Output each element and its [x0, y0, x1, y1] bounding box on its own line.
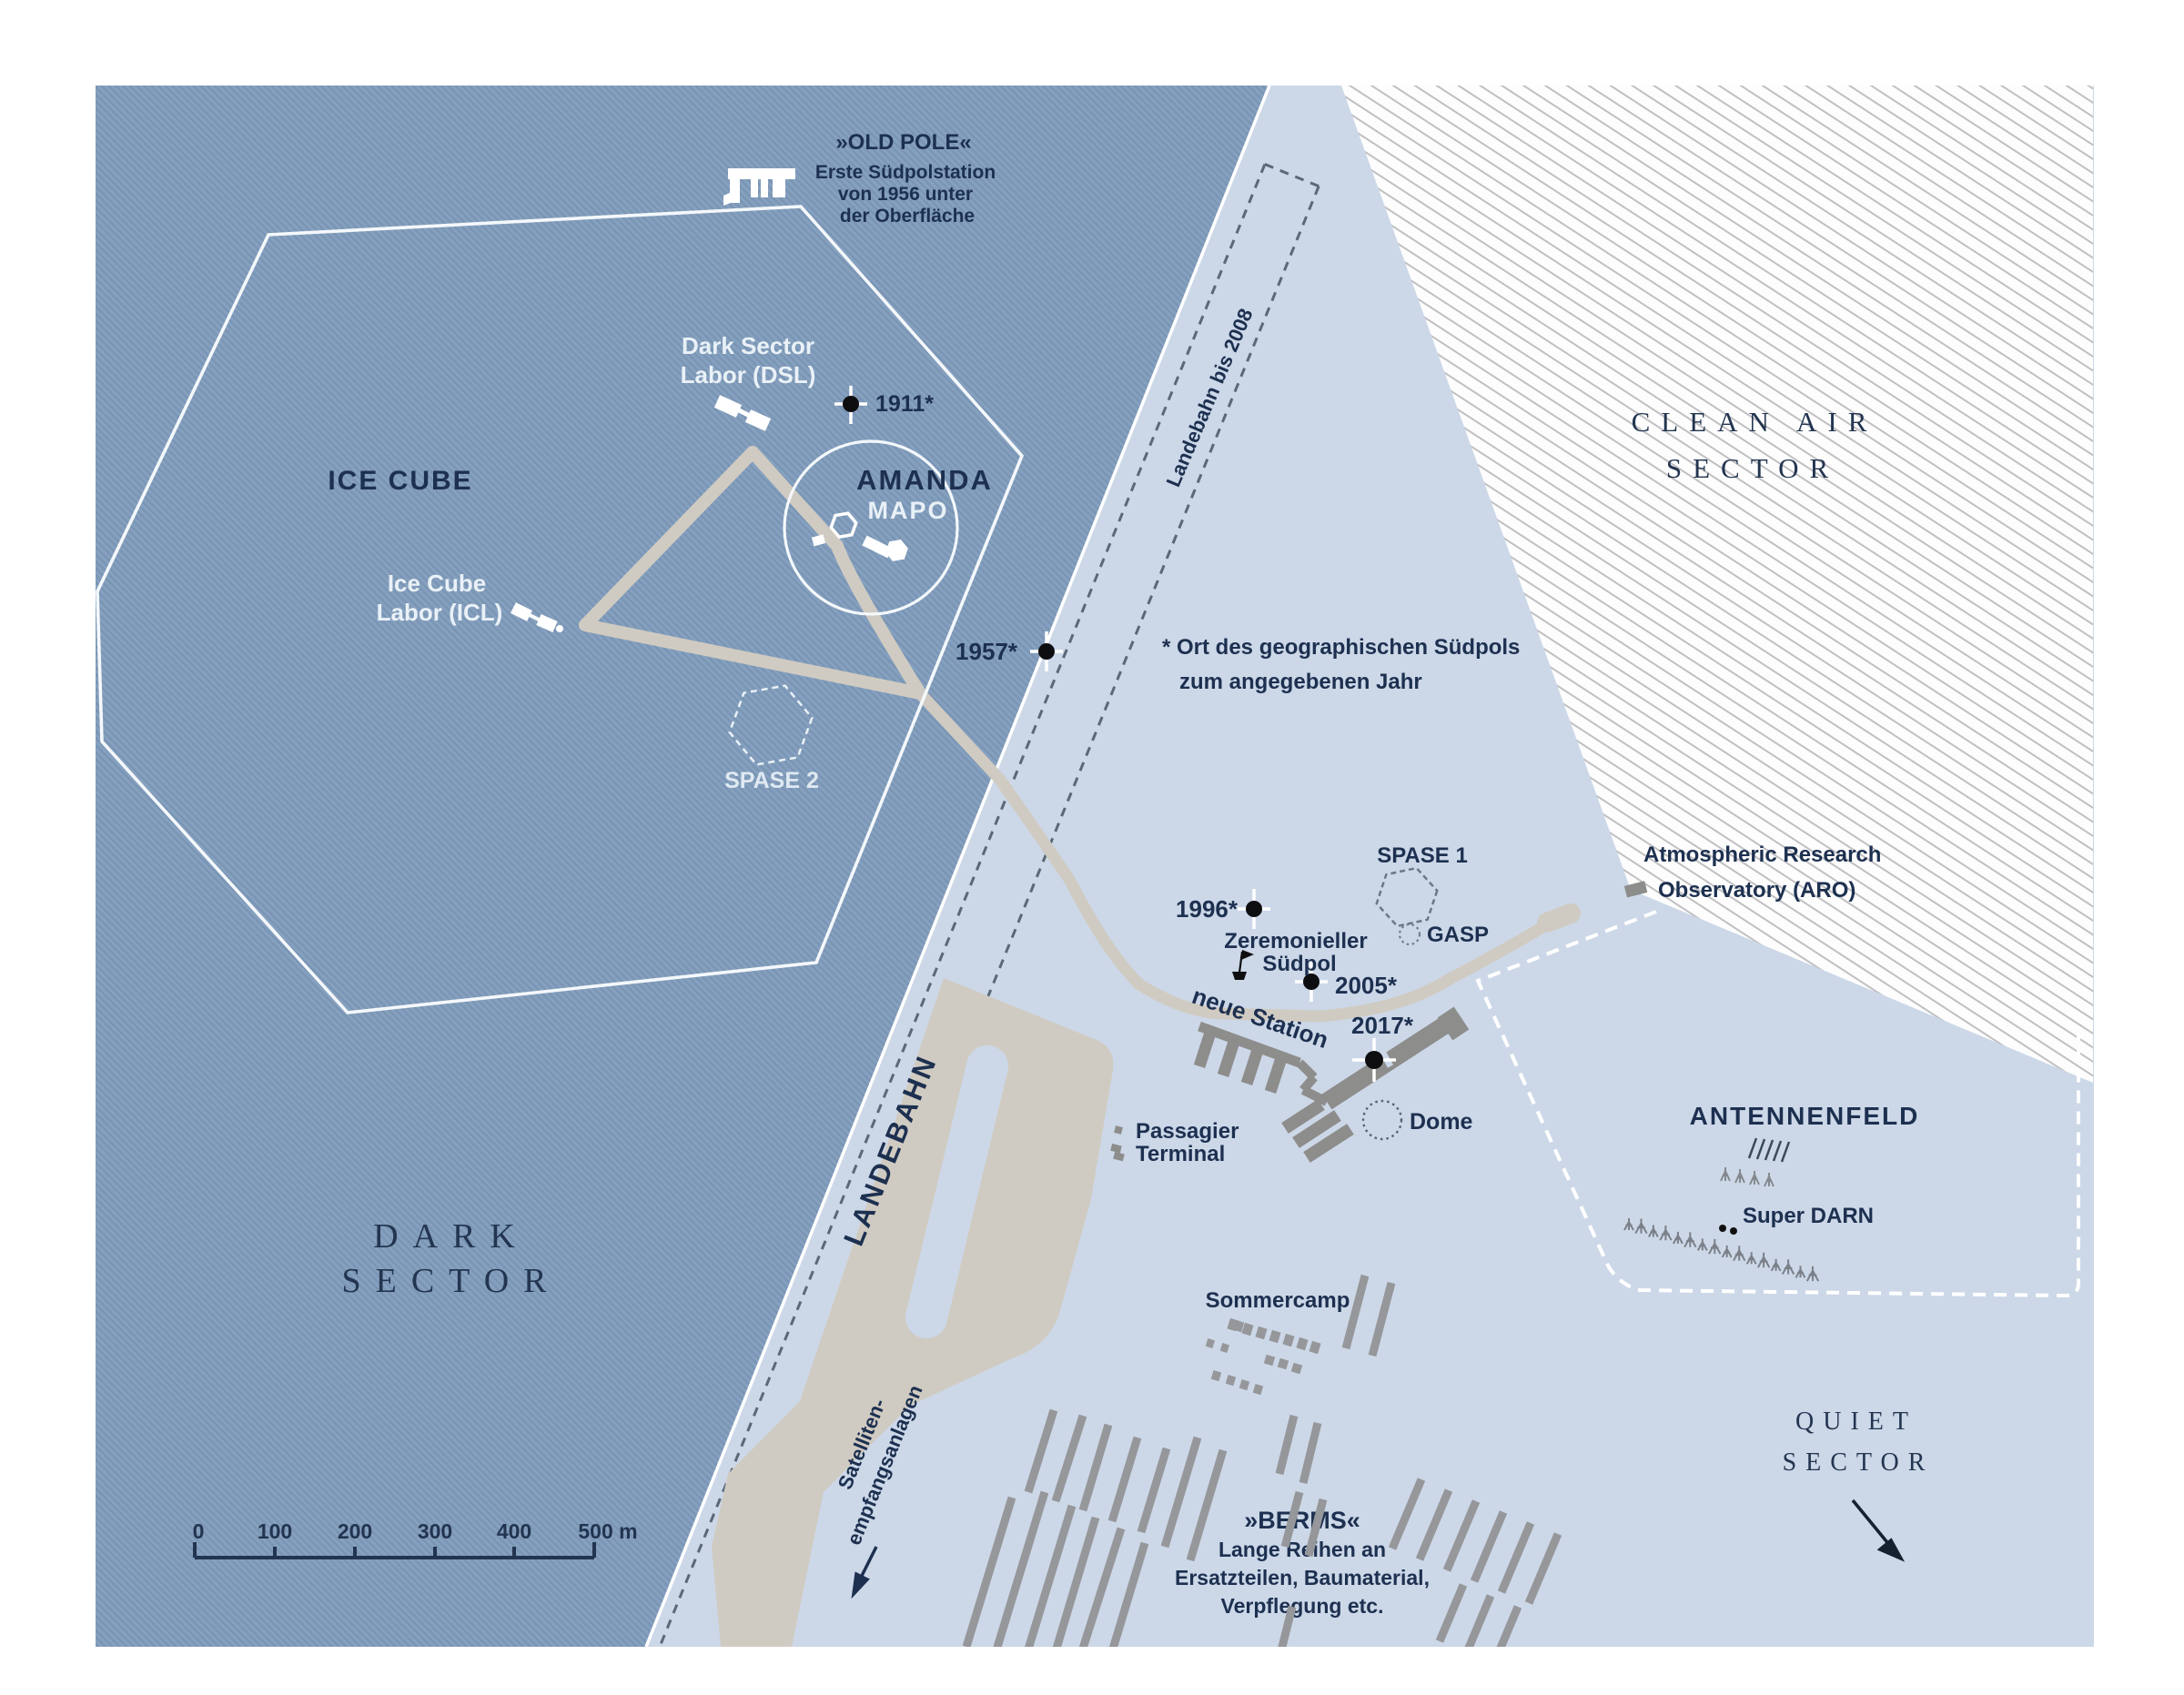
svg-text:1911*: 1911* [875, 391, 934, 417]
svg-text:QUIET: QUIET [1795, 1407, 1917, 1436]
svg-text:0: 0 [193, 1519, 205, 1543]
svg-text:DARK: DARK [373, 1217, 530, 1256]
svg-text:Dome: Dome [1410, 1109, 1473, 1135]
svg-text:SECTOR: SECTOR [1783, 1448, 1935, 1477]
svg-text:ANTENNENFELD: ANTENNENFELD [1690, 1102, 1920, 1130]
svg-text:CLEAN AIR: CLEAN AIR [1632, 406, 1878, 438]
svg-text:Atmospheric Research: Atmospheric Research [1643, 842, 1881, 867]
svg-text:100: 100 [258, 1519, 292, 1543]
svg-text:2005*: 2005* [1335, 972, 1398, 999]
svg-text:1996*: 1996* [1176, 895, 1239, 923]
svg-text:Lange Reihen an: Lange Reihen an [1218, 1538, 1386, 1561]
svg-text:Super DARN: Super DARN [1743, 1204, 1874, 1228]
svg-text:der Oberfläche: der Oberfläche [840, 206, 975, 227]
svg-text:MAPO: MAPO [868, 497, 949, 524]
svg-text:von 1956 unter: von 1956 unter [838, 184, 973, 205]
svg-text:GASP: GASP [1427, 923, 1489, 947]
svg-text:Zeremonieller: Zeremonieller [1224, 929, 1367, 953]
svg-text:Dark Sector: Dark Sector [682, 332, 814, 359]
svg-text:Terminal: Terminal [1136, 1142, 1225, 1166]
svg-text:»OLD POLE«: »OLD POLE« [835, 130, 971, 155]
svg-text:* Ort des geographischen Südpo: * Ort des geographischen Südpols [1162, 635, 1520, 660]
svg-text:AMANDA: AMANDA [856, 464, 993, 496]
svg-text:Passagier: Passagier [1136, 1119, 1239, 1144]
svg-text:ICE CUBE: ICE CUBE [328, 466, 472, 496]
svg-text:SECTOR: SECTOR [341, 1262, 561, 1300]
svg-text:zum angegebenen Jahr: zum angegebenen Jahr [1179, 670, 1422, 694]
svg-text:Labor (ICL): Labor (ICL) [377, 599, 503, 626]
svg-text:Ersatzteilen, Baumaterial,: Ersatzteilen, Baumaterial, [1175, 1566, 1430, 1589]
svg-text:200: 200 [338, 1519, 372, 1543]
svg-text:SECTOR: SECTOR [1666, 452, 1839, 484]
svg-text:Erste Südpolstation: Erste Südpolstation [815, 162, 996, 183]
svg-text:Südpol: Südpol [1262, 952, 1336, 976]
svg-text:SPASE 1: SPASE 1 [1377, 843, 1468, 868]
svg-text:2017*: 2017* [1351, 1012, 1414, 1039]
svg-text:Labor (DSL): Labor (DSL) [681, 361, 816, 388]
svg-text:Ice Cube: Ice Cube [388, 570, 486, 597]
svg-text:Sommercamp: Sommercamp [1206, 1288, 1350, 1313]
svg-text:SPASE 2: SPASE 2 [724, 768, 819, 793]
svg-text:400: 400 [497, 1519, 531, 1543]
svg-text:1957*: 1957* [955, 638, 1018, 665]
svg-text:Observatory (ARO): Observatory (ARO) [1658, 878, 1855, 903]
svg-text:»BERMS«: »BERMS« [1244, 1507, 1360, 1534]
svg-text:500 m: 500 m [578, 1519, 637, 1543]
svg-text:Verpflegung etc.: Verpflegung etc. [1221, 1594, 1384, 1618]
svg-text:300: 300 [418, 1519, 452, 1543]
